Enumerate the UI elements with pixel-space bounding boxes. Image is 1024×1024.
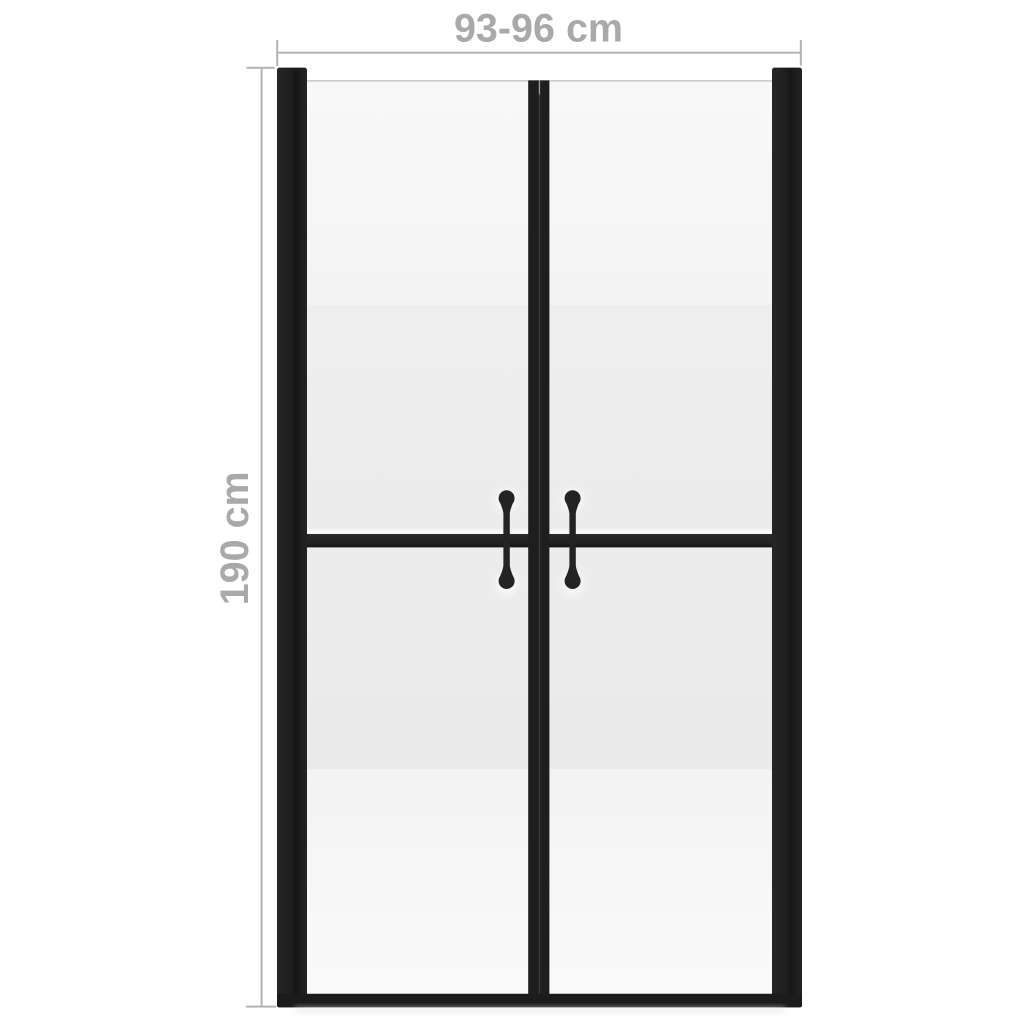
svg-text:93-96 cm: 93-96 cm [454, 7, 623, 51]
svg-text:190 cm: 190 cm [213, 471, 257, 605]
